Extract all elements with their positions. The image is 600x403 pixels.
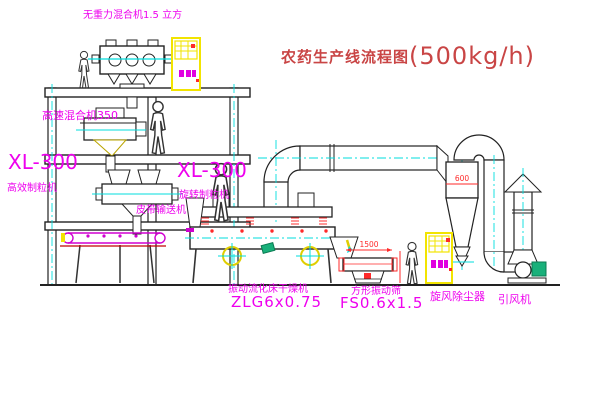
cabinet-marking xyxy=(179,70,196,77)
cyclone-diameter-dimension: 600 xyxy=(455,174,470,183)
fluid-bed-dryer xyxy=(185,193,340,283)
label-belt-conveyor: 皮带输送机 xyxy=(136,206,186,216)
label-granulator-left-name: 高效制粒机 xyxy=(7,184,57,194)
person-top-floor xyxy=(79,51,89,88)
title-text: 农药生产线流程图 xyxy=(281,46,409,67)
label-granulator-mid-name: 旋转制粒机 xyxy=(179,191,229,201)
control-cabinet-right xyxy=(426,233,452,283)
diagram-title: 农药生产线流程图 (500kg/h) xyxy=(281,42,535,70)
indicator-dot xyxy=(446,238,450,242)
label-granulator-left-model: XL-300 xyxy=(8,152,78,172)
label-speed-mixer: 高速混合机350 xyxy=(42,110,118,121)
label-sieve-model: FS0.6x1.5 xyxy=(340,296,423,311)
label-fan: 引风机 xyxy=(498,294,531,305)
person-ground xyxy=(406,242,418,283)
label-dryer-model: ZLG6x0.75 xyxy=(231,295,322,310)
gravity-free-mixer xyxy=(88,40,176,108)
indicator-dot xyxy=(191,44,195,48)
exhaust-duct xyxy=(264,144,437,215)
label-gravity-mixer: 无重力混合机1.5 立方 xyxy=(83,11,182,21)
flow-diagram-canvas: 1500 600 xyxy=(0,0,600,403)
control-cabinet-top xyxy=(172,38,200,90)
label-granulator-mid-model: XL-300 xyxy=(177,160,247,180)
title-capacity: (500kg/h) xyxy=(409,42,535,70)
label-cyclone: 旋风除尘器 xyxy=(430,291,485,302)
discharge-funnel xyxy=(330,237,358,258)
sieve-length-dimension: 1500 xyxy=(359,240,378,249)
cabinet-marking xyxy=(431,260,448,268)
